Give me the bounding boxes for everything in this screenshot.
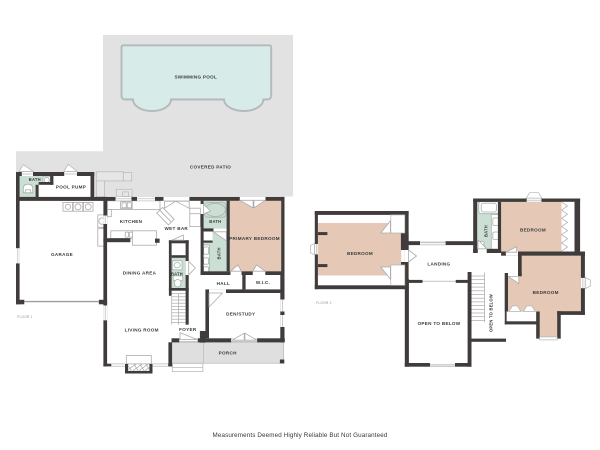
svg-text:Measurements Deemed Highly Rel: Measurements Deemed Highly Reliable But … <box>212 432 387 439</box>
svg-text:FOYER: FOYER <box>179 327 197 332</box>
svg-text:FLOOR 1: FLOOR 1 <box>17 315 33 319</box>
svg-text:LIVING ROOM: LIVING ROOM <box>125 327 159 332</box>
svg-text:BATH: BATH <box>29 177 41 182</box>
svg-text:BEDROOM: BEDROOM <box>533 290 559 295</box>
svg-text:BATH: BATH <box>483 225 488 237</box>
svg-text:COVERED PATIO: COVERED PATIO <box>190 165 231 170</box>
svg-text:BATH: BATH <box>217 247 222 259</box>
svg-text:DEN/STUDY: DEN/STUDY <box>226 311 255 316</box>
svg-text:PORCH: PORCH <box>219 351 237 356</box>
svg-text:BATH: BATH <box>209 219 221 224</box>
svg-text:OPEN TO BELOW: OPEN TO BELOW <box>489 294 494 332</box>
svg-text:LANDING: LANDING <box>427 262 450 267</box>
svg-text:KITCHEN: KITCHEN <box>120 219 143 224</box>
svg-text:BEDROOM: BEDROOM <box>520 227 546 232</box>
svg-text:BATH: BATH <box>171 271 183 276</box>
svg-text:POOL PUMP: POOL PUMP <box>56 185 86 190</box>
svg-text:BEDROOM: BEDROOM <box>347 251 373 256</box>
svg-text:PRIMARY BEDROOM: PRIMARY BEDROOM <box>229 236 280 241</box>
svg-text:GARAGE: GARAGE <box>51 252 73 257</box>
svg-text:DINING AREA: DINING AREA <box>123 271 157 276</box>
svg-text:OPEN TO BELOW: OPEN TO BELOW <box>418 321 461 326</box>
svg-text:W.I.C.: W.I.C. <box>256 280 270 285</box>
svg-text:FLOOR 2: FLOOR 2 <box>316 301 332 305</box>
svg-text:WET BAR: WET BAR <box>165 226 189 231</box>
svg-text:HALL: HALL <box>217 281 230 286</box>
svg-text:SWIMMING POOL: SWIMMING POOL <box>174 75 217 80</box>
